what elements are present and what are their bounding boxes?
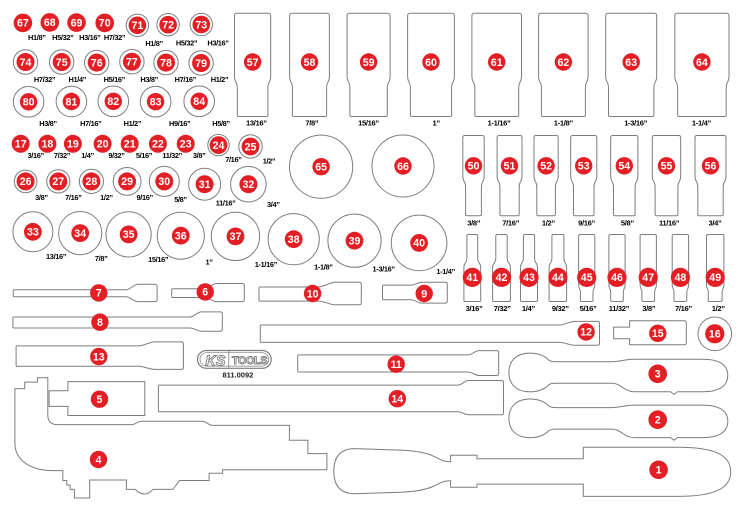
svg-text:39: 39 (349, 236, 361, 248)
svg-text:48: 48 (675, 272, 687, 284)
svg-text:H3/8”: H3/8” (140, 75, 158, 84)
svg-text:61: 61 (491, 57, 503, 69)
svg-text:1/4”: 1/4” (522, 304, 536, 313)
svg-text:1-3/16”: 1-3/16” (372, 265, 395, 274)
svg-text:49: 49 (709, 272, 721, 284)
svg-text:47: 47 (642, 272, 654, 284)
svg-text:3/8”: 3/8” (467, 219, 481, 228)
svg-text:H7/16”: H7/16” (80, 119, 102, 128)
svg-text:H5/8”: H5/8” (212, 119, 230, 128)
svg-text:11/16”: 11/16” (216, 199, 236, 208)
svg-text:3/8”: 3/8” (193, 151, 206, 160)
svg-text:57: 57 (247, 57, 259, 69)
svg-text:H7/16”: H7/16” (175, 75, 197, 84)
svg-text:60: 60 (425, 57, 437, 69)
svg-text:80: 80 (23, 97, 35, 109)
svg-text:32: 32 (243, 179, 255, 191)
svg-text:3/16”: 3/16” (28, 151, 45, 160)
svg-text:24: 24 (213, 140, 225, 152)
svg-text:51: 51 (504, 161, 516, 173)
svg-text:29: 29 (121, 176, 133, 188)
svg-text:H3/16”: H3/16” (79, 33, 101, 42)
svg-text:9/16”: 9/16” (578, 219, 595, 228)
svg-text:9/32”: 9/32” (108, 151, 125, 160)
svg-text:6: 6 (202, 287, 208, 299)
svg-text:H1/8”: H1/8” (28, 33, 46, 42)
svg-text:77: 77 (126, 57, 138, 69)
svg-text:11/32”: 11/32” (162, 151, 182, 160)
svg-text:27: 27 (52, 176, 64, 188)
svg-text:50: 50 (468, 161, 480, 173)
svg-text:1-1/4”: 1-1/4” (436, 267, 455, 276)
svg-text:54: 54 (618, 161, 630, 173)
svg-text:3/8”: 3/8” (35, 193, 48, 202)
svg-text:H1/2”: H1/2” (124, 119, 142, 128)
svg-text:811.0092: 811.0092 (222, 371, 253, 380)
svg-text:9: 9 (421, 288, 427, 300)
svg-text:38: 38 (288, 234, 300, 246)
svg-text:68: 68 (44, 17, 56, 29)
svg-text:10: 10 (307, 288, 319, 300)
svg-text:H1/8”: H1/8” (145, 39, 163, 48)
svg-text:1-1/16”: 1-1/16” (255, 260, 278, 269)
svg-text:34: 34 (74, 228, 86, 240)
svg-text:1”: 1” (206, 257, 214, 266)
svg-text:H3/16”: H3/16” (207, 39, 229, 48)
svg-text:74: 74 (20, 57, 32, 69)
svg-text:33: 33 (27, 227, 39, 239)
svg-text:TOOLS: TOOLS (232, 355, 267, 367)
svg-text:17: 17 (15, 139, 27, 151)
svg-text:1-1/16”: 1-1/16” (488, 119, 511, 128)
svg-text:5/16”: 5/16” (136, 151, 153, 160)
svg-text:H3/8”: H3/8” (39, 119, 57, 128)
svg-text:82: 82 (107, 96, 119, 108)
svg-text:1-1/8”: 1-1/8” (554, 119, 574, 128)
svg-text:79: 79 (195, 58, 207, 70)
svg-text:8: 8 (97, 317, 103, 329)
svg-text:72: 72 (162, 20, 174, 32)
svg-text:64: 64 (696, 57, 708, 69)
svg-text:1-3/16”: 1-3/16” (624, 119, 647, 128)
svg-text:7/32”: 7/32” (494, 304, 511, 313)
svg-text:78: 78 (160, 57, 172, 69)
svg-text:53: 53 (578, 161, 590, 173)
svg-text:70: 70 (99, 18, 111, 30)
svg-text:7/16”: 7/16” (675, 304, 692, 313)
svg-text:22: 22 (152, 139, 164, 151)
svg-text:5/16”: 5/16” (580, 304, 597, 313)
svg-text:73: 73 (195, 19, 207, 31)
svg-text:13: 13 (93, 351, 105, 363)
svg-text:25: 25 (245, 141, 257, 153)
svg-text:1: 1 (656, 465, 662, 477)
svg-text:7/16”: 7/16” (65, 193, 82, 202)
svg-text:62: 62 (558, 57, 570, 69)
svg-text:45: 45 (581, 272, 593, 284)
svg-text:11/16”: 11/16” (659, 219, 680, 228)
svg-text:15: 15 (652, 328, 664, 340)
svg-text:H1/4”: H1/4” (69, 75, 87, 84)
svg-text:16: 16 (709, 329, 721, 341)
svg-text:H1/2”: H1/2” (211, 75, 229, 84)
svg-text:41: 41 (466, 272, 478, 284)
svg-text:43: 43 (523, 272, 535, 284)
svg-text:81: 81 (66, 96, 78, 108)
svg-text:84: 84 (193, 96, 205, 108)
svg-text:1-1/4”: 1-1/4” (692, 119, 712, 128)
svg-text:20: 20 (97, 139, 109, 151)
svg-text:H5/32”: H5/32” (176, 39, 198, 48)
svg-text:31: 31 (199, 179, 211, 191)
svg-text:5/8”: 5/8” (174, 195, 187, 204)
svg-text:1/2”: 1/2” (712, 304, 726, 313)
svg-text:7: 7 (96, 288, 102, 300)
svg-text:H5/32”: H5/32” (52, 33, 74, 42)
svg-text:69: 69 (71, 17, 83, 29)
svg-text:3/4”: 3/4” (709, 219, 723, 228)
svg-text:H7/32”: H7/32” (34, 75, 56, 84)
svg-text:11/32”: 11/32” (609, 304, 630, 313)
svg-text:63: 63 (625, 57, 637, 69)
svg-text:28: 28 (86, 176, 98, 188)
svg-text:4: 4 (96, 454, 102, 466)
svg-text:75: 75 (56, 57, 68, 69)
svg-text:3: 3 (655, 369, 661, 381)
svg-text:42: 42 (496, 272, 508, 284)
svg-text:71: 71 (132, 20, 144, 32)
svg-text:13/16”: 13/16” (46, 252, 67, 261)
svg-text:1”: 1” (433, 119, 441, 128)
svg-text:15/16”: 15/16” (148, 255, 169, 264)
svg-text:36: 36 (175, 231, 187, 243)
svg-text:46: 46 (611, 272, 623, 284)
svg-text:23: 23 (180, 139, 192, 151)
svg-text:58: 58 (304, 57, 316, 69)
svg-text:56: 56 (705, 161, 717, 173)
svg-text:9/16”: 9/16” (137, 193, 154, 202)
svg-text:1-1/8”: 1-1/8” (314, 263, 333, 272)
svg-text:7/16”: 7/16” (502, 219, 519, 228)
svg-text:83: 83 (150, 97, 162, 109)
svg-text:11: 11 (391, 359, 402, 371)
svg-text:65: 65 (315, 162, 327, 174)
svg-text:9/32”: 9/32” (552, 304, 569, 313)
svg-text:12: 12 (580, 327, 592, 339)
svg-text:KS: KS (205, 353, 225, 369)
svg-text:40: 40 (413, 238, 425, 250)
svg-text:13/16”: 13/16” (246, 119, 267, 128)
svg-text:5/8”: 5/8” (621, 219, 635, 228)
svg-text:7/32”: 7/32” (54, 151, 71, 160)
svg-text:1/4”: 1/4” (81, 151, 94, 160)
svg-text:3/8”: 3/8” (642, 304, 656, 313)
svg-text:55: 55 (661, 161, 673, 173)
svg-text:44: 44 (552, 272, 564, 284)
svg-text:H9/16”: H9/16” (169, 119, 191, 128)
svg-text:5: 5 (97, 394, 103, 406)
svg-text:1/2”: 1/2” (263, 156, 276, 165)
svg-text:14: 14 (391, 394, 403, 406)
svg-text:37: 37 (230, 231, 242, 243)
svg-text:1/2”: 1/2” (542, 219, 556, 228)
svg-text:19: 19 (67, 139, 79, 151)
svg-text:59: 59 (363, 57, 375, 69)
svg-text:3/16”: 3/16” (466, 304, 483, 313)
svg-text:15/16”: 15/16” (358, 119, 379, 128)
svg-text:1/2”: 1/2” (100, 193, 113, 202)
svg-text:H7/32”: H7/32” (104, 33, 126, 42)
svg-text:7/8”: 7/8” (305, 119, 319, 128)
svg-text:18: 18 (42, 139, 54, 151)
svg-text:3/4”: 3/4” (267, 200, 280, 209)
svg-text:76: 76 (91, 57, 103, 69)
svg-text:7/16”: 7/16” (225, 155, 242, 164)
svg-text:21: 21 (124, 139, 136, 151)
svg-text:2: 2 (655, 415, 661, 427)
svg-text:67: 67 (17, 18, 29, 30)
svg-text:35: 35 (123, 229, 135, 241)
svg-text:30: 30 (158, 176, 170, 188)
svg-text:52: 52 (540, 161, 552, 173)
svg-text:66: 66 (397, 161, 409, 173)
svg-text:26: 26 (20, 176, 32, 188)
svg-text:H5/16”: H5/16” (104, 75, 126, 84)
svg-text:7/8”: 7/8” (95, 254, 108, 263)
